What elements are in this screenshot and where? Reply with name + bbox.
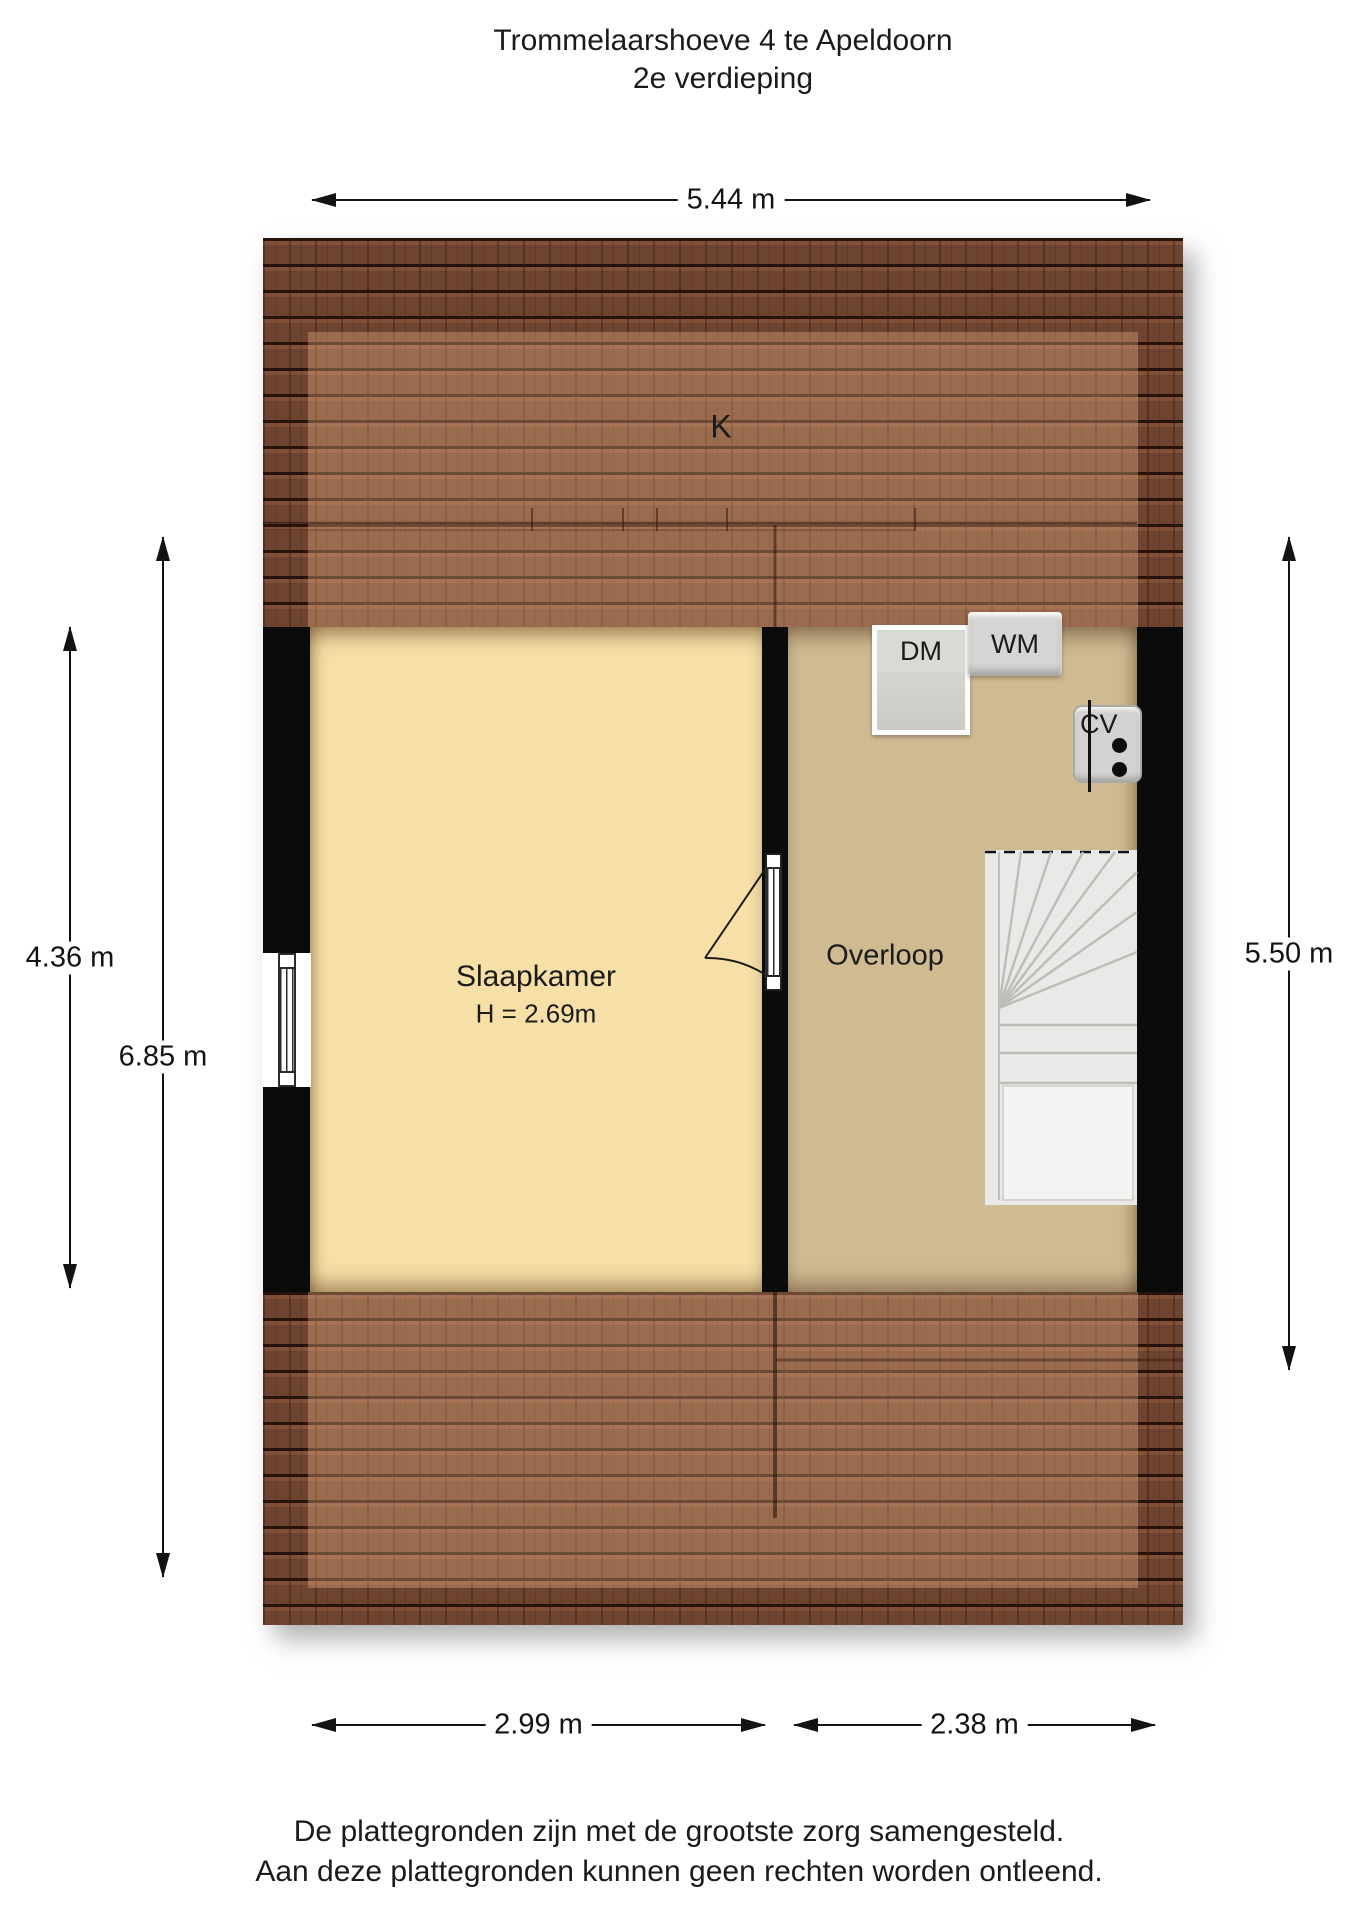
- dimension-value: 4.36 m: [17, 941, 124, 974]
- arrow-right-icon: [1126, 193, 1151, 207]
- dimension-left-outer: 6.85 m: [149, 537, 177, 1577]
- appliance-dm-body: [877, 672, 965, 730]
- dimension-bottom-right: 2.38 m: [794, 1711, 1155, 1739]
- appliance-wm: WM: [968, 612, 1062, 676]
- disclaimer-line2: Aan deze plattegronden kunnen geen recht…: [119, 1852, 1239, 1892]
- staircase: [985, 850, 1137, 1205]
- dimension-top: 5.44 m: [312, 186, 1150, 214]
- appliance-cv-label: CV: [1080, 709, 1118, 740]
- dimension-bottom-left: 2.99 m: [312, 1711, 765, 1739]
- room-slaapkamer-height-label: H = 2.69m: [476, 999, 597, 1030]
- arrow-left-icon: [793, 1718, 818, 1732]
- arrow-down-icon: [63, 1264, 77, 1289]
- dimension-value: 5.44 m: [678, 184, 785, 217]
- roof-window-label: K: [710, 409, 731, 446]
- dimension-value: 2.38 m: [921, 1709, 1028, 1742]
- arrow-left-icon: [311, 193, 336, 207]
- roof-top-seam-lines: [263, 508, 1137, 627]
- page-title: Trommelaarshoeve 4 te Apeldoorn 2e verdi…: [263, 22, 1183, 98]
- dimension-value: 6.85 m: [110, 1041, 217, 1074]
- appliance-cv: CV: [1073, 705, 1142, 783]
- arrow-left-icon: [311, 1718, 336, 1732]
- door-jamb-bottom: [765, 975, 782, 991]
- appliance-wm-label: WM: [991, 629, 1039, 660]
- room-slaapkamer-label: Slaapkamer: [456, 960, 616, 994]
- title-address: Trommelaarshoeve 4 te Apeldoorn: [263, 22, 1183, 60]
- title-floor: 2e verdieping: [263, 60, 1183, 98]
- plan-detail-overlay: [263, 238, 1183, 1625]
- disclaimer: De plattegronden zijn met de grootste zo…: [119, 1812, 1239, 1892]
- arrow-right-icon: [1131, 1718, 1156, 1732]
- dimension-value: 2.99 m: [485, 1709, 592, 1742]
- disclaimer-line1: De plattegronden zijn met de grootste zo…: [119, 1812, 1239, 1852]
- window: [262, 953, 311, 1087]
- window-frame-cap-bottom: [278, 1071, 296, 1087]
- appliance-dm: DM: [872, 625, 970, 735]
- room-overloop-label: Overloop: [826, 940, 944, 973]
- door-swing: [705, 868, 766, 975]
- cv-pipe-line: [1088, 700, 1091, 792]
- floorplan-drawing: DM WM CV K Slaapkamer H = 2.69m Overloop: [263, 238, 1183, 1625]
- dimension-value: 5.50 m: [1236, 937, 1343, 970]
- arrow-up-icon: [156, 536, 170, 561]
- window-glass: [278, 967, 296, 1073]
- arrow-up-icon: [63, 626, 77, 651]
- roof-bottom-seam-lines: [775, 1292, 1183, 1518]
- dimension-right: 5.50 m: [1275, 537, 1303, 1370]
- arrow-down-icon: [1282, 1346, 1296, 1371]
- arrow-up-icon: [1282, 536, 1296, 561]
- arrow-right-icon: [741, 1718, 766, 1732]
- cv-dot-icon: [1112, 738, 1127, 753]
- cv-dot-icon: [1112, 762, 1127, 777]
- door-leaf: [765, 867, 782, 977]
- floorplan-page: Trommelaarshoeve 4 te Apeldoorn 2e verdi…: [0, 0, 1358, 1920]
- appliance-dm-label: DM: [877, 630, 965, 672]
- dimension-left-inner: 4.36 m: [56, 627, 84, 1288]
- arrow-down-icon: [156, 1553, 170, 1578]
